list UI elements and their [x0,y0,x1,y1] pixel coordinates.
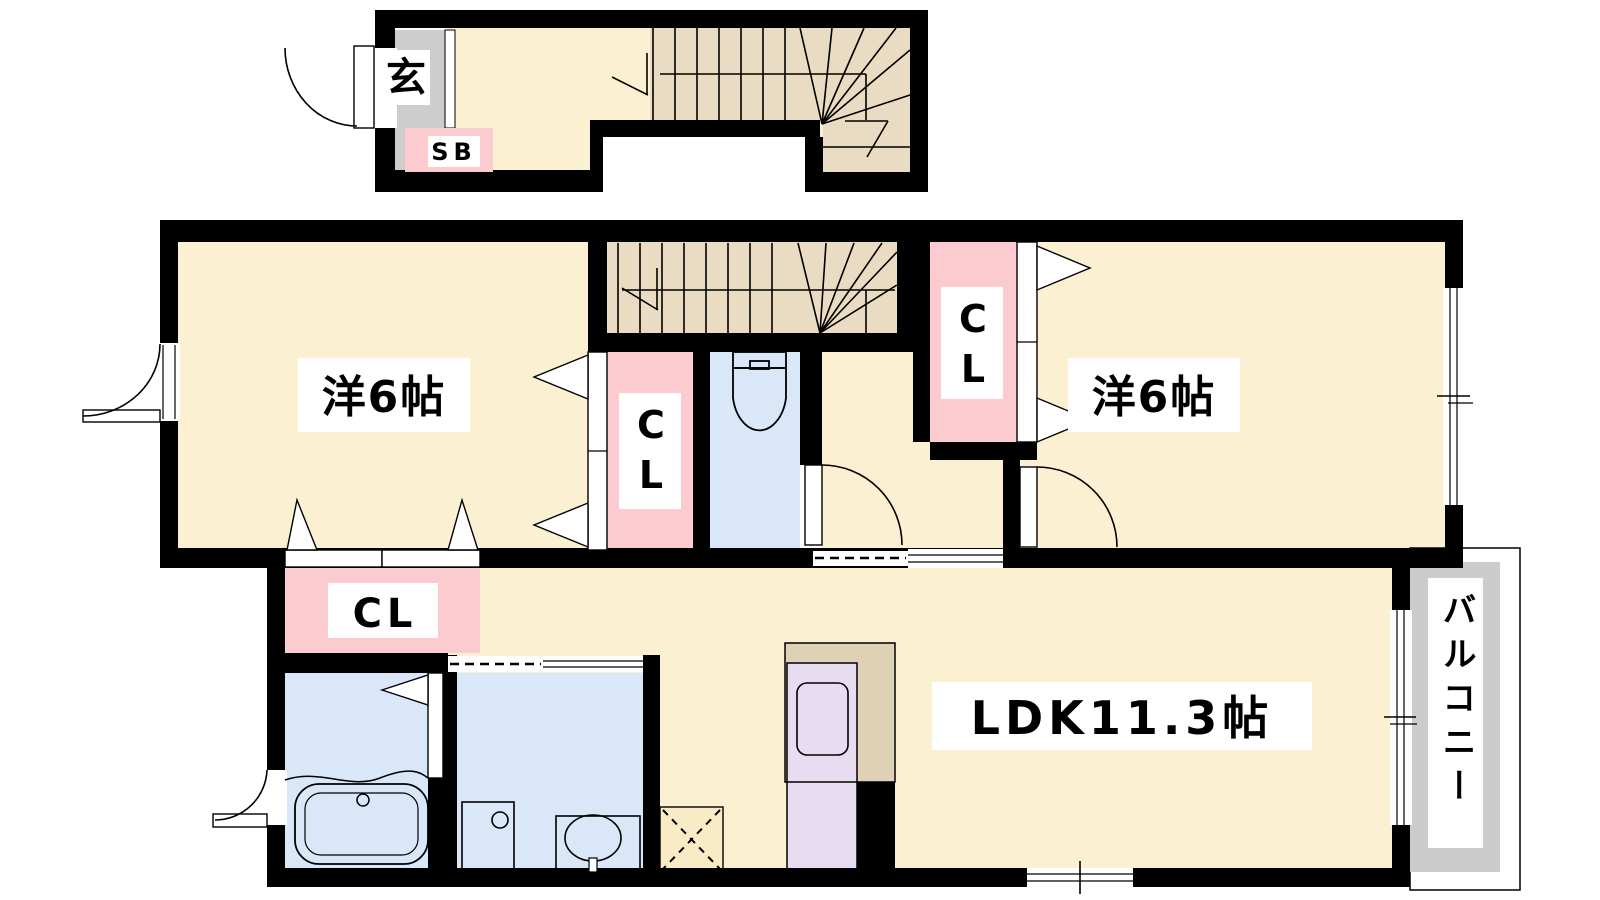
hall-ldk-opening [908,549,1003,568]
wall [897,242,913,352]
ldk-label: LDK11.3帖 [971,691,1274,745]
wall [800,352,822,465]
washarea-door-opening [265,770,287,825]
washarea-door-swing-arc [215,770,267,820]
wall [857,782,895,872]
wall [1003,460,1020,548]
closet-mid-left-label: CL [629,403,673,503]
toilet-door-leaf [805,465,822,545]
balcony: バルコニー [1410,548,1520,890]
wall [910,10,928,192]
wall [913,242,930,442]
floor-plan-page: SB 玄 バルコニー [0,0,1600,900]
second-floor-section: バルコニー [83,220,1520,894]
bifold-panel [382,550,480,567]
bedroom-left-door-opening [158,343,180,421]
wall [428,778,443,872]
stairs-1f-lower-floor [823,120,910,172]
wall [590,120,603,192]
washarea-door-leaf [213,814,267,827]
floor-plan-drawing: SB 玄 バルコニー [0,0,1600,900]
first-floor-entrance-section: SB 玄 [285,10,928,192]
wall [375,10,928,28]
wall [160,220,1463,242]
stairs-2f-floor [607,242,897,333]
entrance-door-swing-arc [285,48,357,126]
closet-mid-right-label: CL [951,297,995,397]
entrance-door-leaf [354,46,374,128]
shoe-box-label: SB [431,138,477,166]
wall [285,653,448,673]
bifold-panel [428,673,443,778]
wall [267,548,285,887]
closet-lower-label: CL [353,591,418,637]
entrance-label: 玄 [386,55,426,101]
balcony-label: バルコニー [1436,592,1476,812]
genkan-step-edge [445,30,455,128]
wall [588,333,913,352]
wall [443,655,457,872]
kitchen-unit [785,643,895,872]
wall [590,120,820,137]
bedroom-right-label: 洋6帖 [1092,372,1217,423]
bedroom-right-door-leaf [1020,467,1037,547]
refrigerator-space [660,807,723,872]
wall [805,172,928,192]
bifold-panel [285,550,382,567]
wall [375,170,603,192]
wall [588,242,607,333]
bathroom-floor [285,673,428,872]
bedroom-left-label: 洋6帖 [322,372,447,423]
plan-notch [603,137,805,192]
wall [693,352,710,550]
wall [930,442,1037,460]
wall [643,655,660,872]
bedroom-left-door-swing-arc [83,344,160,416]
washroom-floor [457,673,643,872]
washroom-opening [543,656,643,672]
